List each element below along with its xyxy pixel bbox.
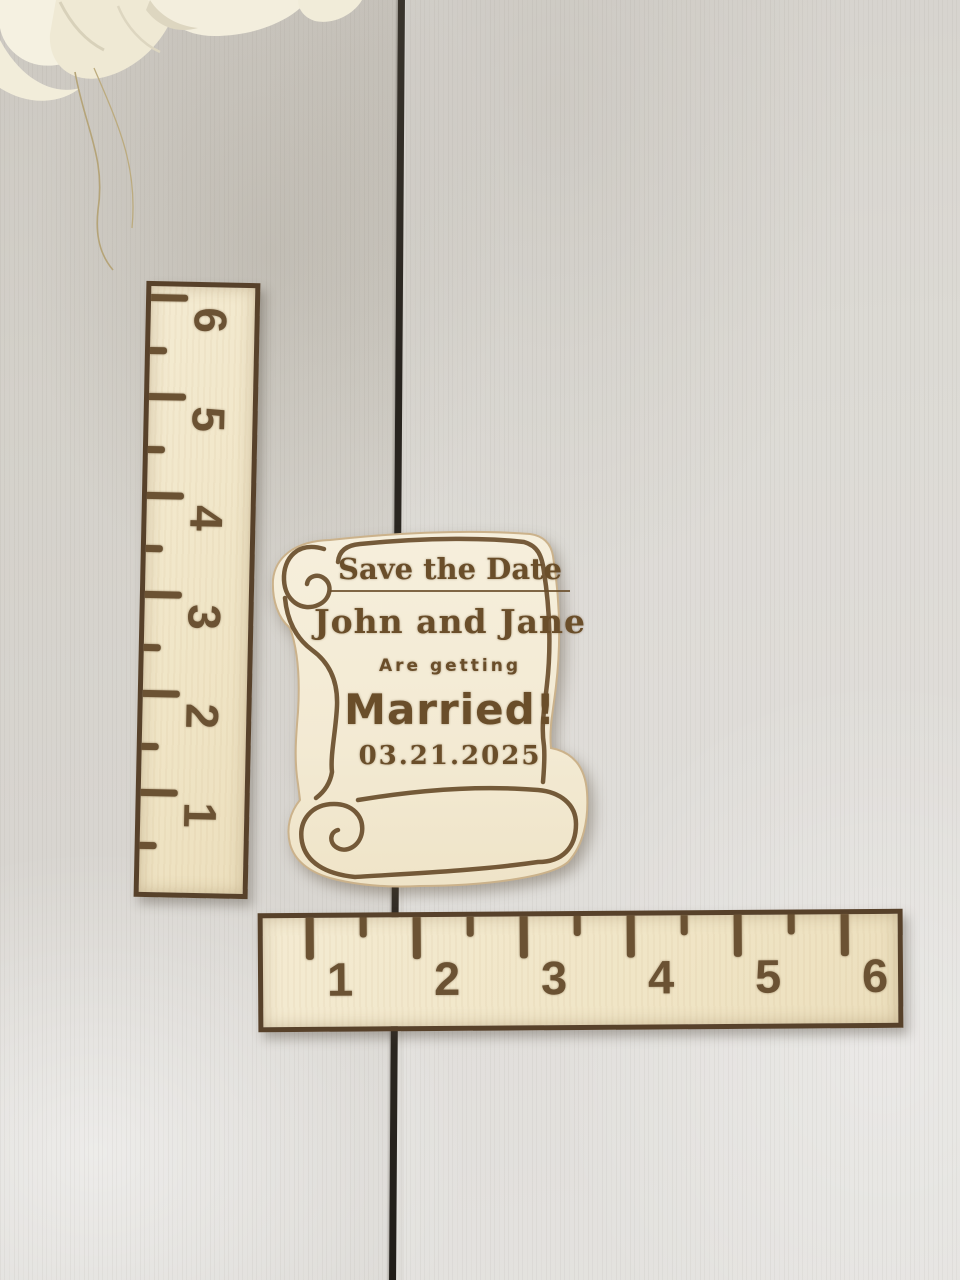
- product-photo: 6 5 4 3 2 1 1 2 3 4 5 6: [0, 0, 960, 1280]
- ruler-number: 3: [178, 589, 231, 646]
- white-rose: [0, 0, 380, 290]
- ruler-number: 5: [182, 391, 235, 448]
- ruler-tick: [140, 842, 157, 849]
- ruler-number: 2: [176, 688, 229, 745]
- ruler-tick: [467, 917, 474, 937]
- magnet-title-text: Save the Date: [330, 551, 570, 592]
- ruler-number: 4: [180, 490, 233, 547]
- ruler-number: 6: [184, 292, 237, 349]
- ruler-tick: [145, 591, 182, 599]
- ruler-tick: [144, 644, 161, 651]
- ruler-tick: [148, 446, 165, 453]
- ruler-number: 2: [419, 951, 475, 1006]
- ruler-tick: [149, 393, 186, 401]
- ruler-number: 1: [174, 787, 227, 844]
- ruler-tick: [147, 492, 184, 500]
- magnet-subtitle: Are getting: [300, 656, 600, 676]
- ruler-tick: [788, 915, 795, 935]
- ruler-number: 1: [312, 951, 368, 1006]
- ruler-tick: [574, 916, 581, 936]
- ruler-tick: [142, 743, 159, 750]
- magnet-date: 03.21.2025: [300, 741, 600, 771]
- ruler-tick: [146, 545, 163, 552]
- ruler-tick: [360, 917, 367, 937]
- horizontal-ruler: 1 2 3 4 5 6: [258, 909, 904, 1033]
- vertical-ruler: 6 5 4 3 2 1: [134, 281, 261, 899]
- ruler-number: 4: [633, 949, 689, 1004]
- ruler-tick: [141, 789, 178, 797]
- ruler-tick: [681, 915, 688, 935]
- magnet-names: John and Jane: [300, 602, 600, 641]
- magnet-headline: Married!: [300, 685, 600, 734]
- ruler-tick: [150, 347, 167, 354]
- ruler-tick: [151, 294, 188, 302]
- ruler-number: 6: [847, 948, 903, 1003]
- ruler-tick: [143, 690, 180, 698]
- ruler-number: 5: [740, 948, 796, 1003]
- magnet-title: Save the Date: [300, 551, 600, 592]
- magnet-engraving: Save the Date John and Jane Are getting …: [300, 551, 600, 771]
- ruler-number: 3: [526, 950, 582, 1005]
